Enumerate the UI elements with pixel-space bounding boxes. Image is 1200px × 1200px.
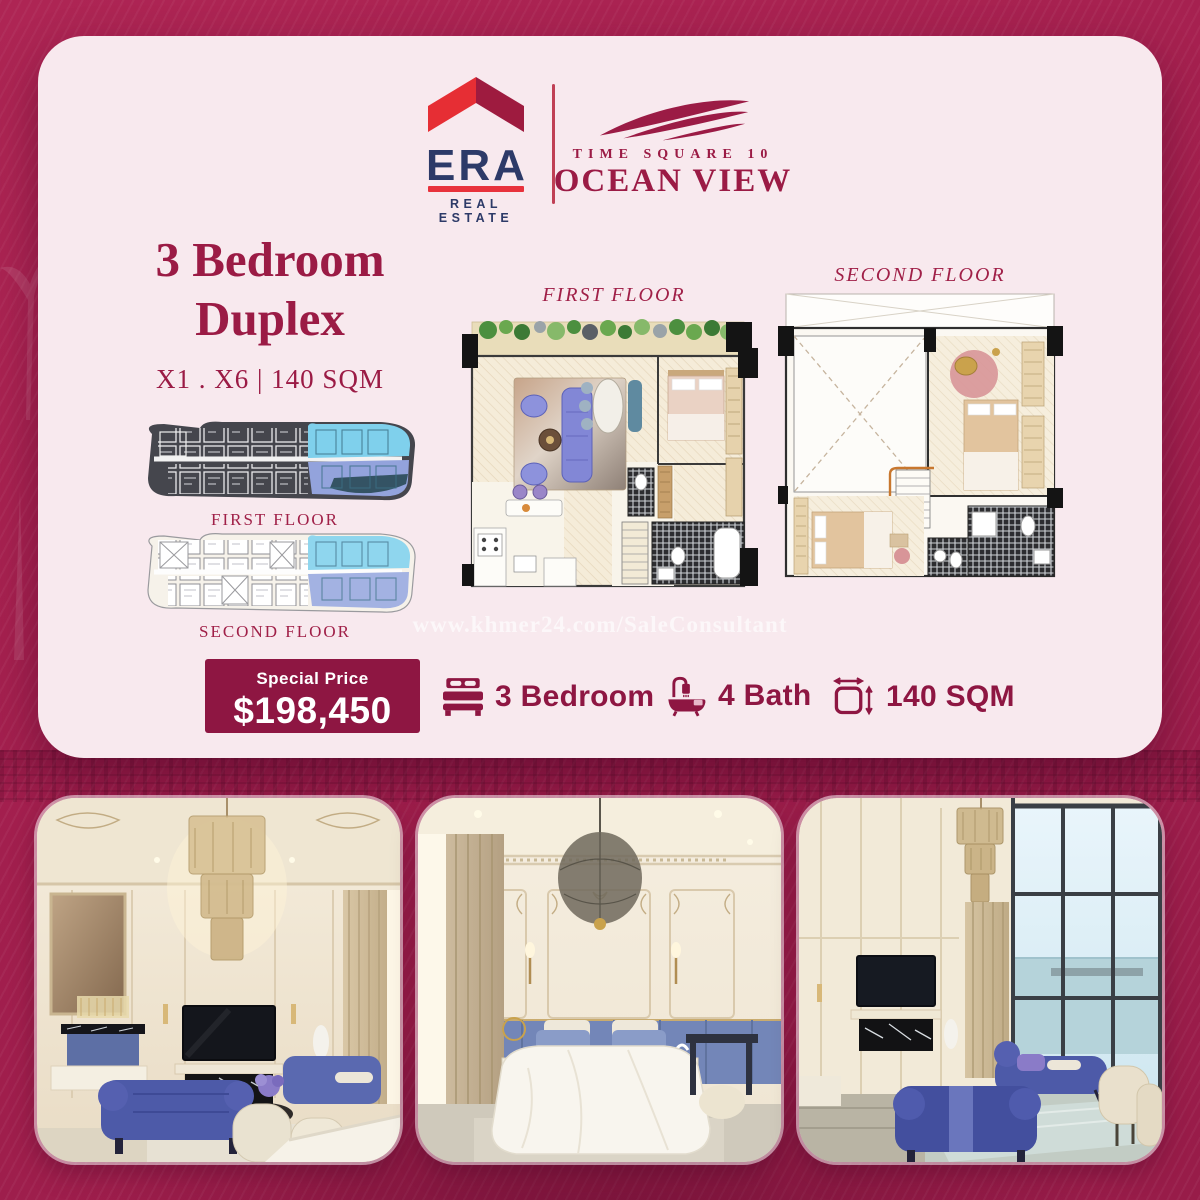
unit-title-line1: 3 Bedroom: [120, 231, 420, 290]
site-plate-second-floor: [130, 530, 420, 618]
area-icon: [832, 677, 874, 717]
watermark: www.khmer24.com/SaleConsultant: [400, 612, 800, 638]
feature-bedroom-label: 3 Bedroom: [495, 680, 654, 714]
unit-plan-second-floor-label: SECOND FLOOR: [775, 264, 1065, 287]
site-plate-second-floor-label: SECOND FLOOR: [130, 622, 420, 642]
era-logo-bar: [428, 186, 524, 192]
bath-icon: [666, 675, 706, 717]
photo-living-room: [37, 798, 400, 1162]
price-value: $198,450: [205, 690, 420, 732]
site-plate-first-floor: [130, 418, 420, 506]
era-logo-text: ERA: [426, 144, 526, 188]
feature-bath: 4 Bath: [666, 674, 812, 718]
unit-title-line2: Duplex: [120, 290, 420, 349]
price-label: Special Price: [205, 659, 420, 689]
project-subtitle: TIME SQUARE 10: [553, 147, 793, 163]
flyer-background: ERA REAL ESTATE TIME SQUARE 10 OCEAN VIE…: [0, 0, 1200, 1200]
era-house-icon: [426, 76, 526, 140]
unit-plan-first-floor-label: FIRST FLOOR: [466, 284, 762, 307]
feature-area-label: 140 SQM: [886, 680, 1015, 714]
listing-card: ERA REAL ESTATE TIME SQUARE 10 OCEAN VIE…: [38, 36, 1162, 758]
project-title: OCEAN VIEW: [543, 163, 803, 200]
unit-plan-first-floor: [462, 306, 758, 594]
feature-area: 140 SQM: [832, 676, 1015, 718]
photo-bedroom: [418, 798, 781, 1162]
unit-spec: X1 . X6 | 140 SQM: [100, 364, 440, 395]
feature-bath-label: 4 Bath: [718, 679, 812, 713]
bed-icon: [443, 678, 483, 716]
unit-plan-second-floor: [778, 288, 1063, 584]
era-logo-tagline: REAL ESTATE: [414, 197, 538, 225]
site-plate-first-floor-label: FIRST FLOOR: [130, 510, 420, 530]
feature-bedroom: 3 Bedroom: [443, 676, 654, 718]
price-badge: Special Price $198,450: [205, 659, 420, 733]
unit-title: 3 Bedroom Duplex: [120, 231, 420, 349]
photo-ocean-view-living-room: [799, 798, 1162, 1162]
ocean-wave-icon: [596, 90, 752, 142]
